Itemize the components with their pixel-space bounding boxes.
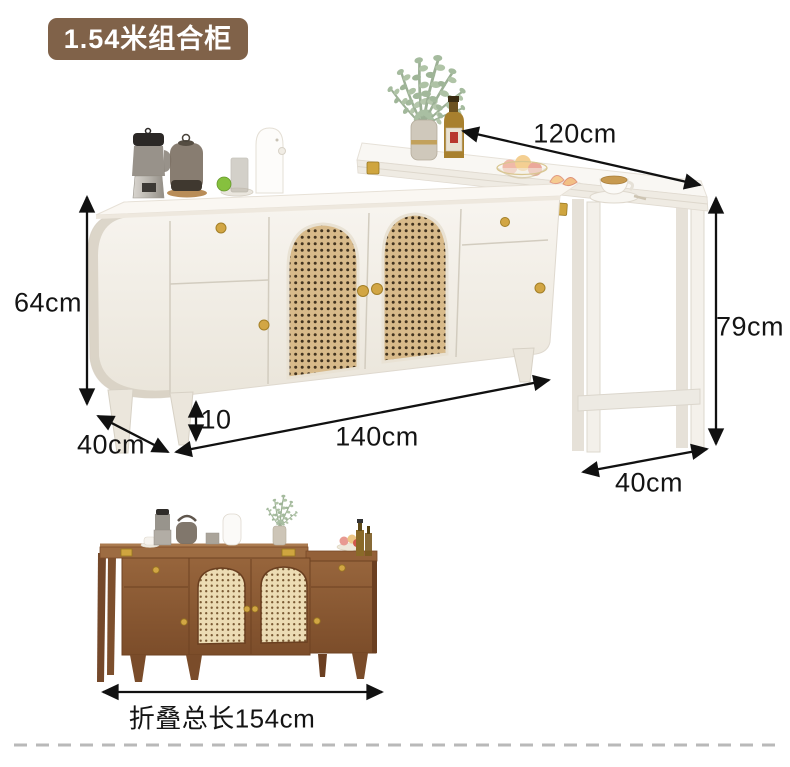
folded-table-leg <box>107 556 116 675</box>
fold-hinge <box>121 549 132 556</box>
table-leg <box>691 209 704 448</box>
product-diagram-art <box>0 0 790 767</box>
rattan-arch-door <box>261 567 307 643</box>
rattan-arch-door <box>198 568 245 644</box>
size-badge: 1.54米组合柜 <box>48 18 248 60</box>
table-leg <box>587 202 600 452</box>
table-leg <box>572 199 584 451</box>
dim-label-cabinet-height: 64cm <box>14 288 82 319</box>
white-cabinet <box>88 183 579 453</box>
dim-label-cabinet-width: 140cm <box>335 422 419 453</box>
dim-label-leg-height: 10 <box>200 405 231 436</box>
folded-length-caption: 折叠总长154cm <box>129 699 316 736</box>
walnut-cabinet-folded <box>97 494 377 682</box>
glass-kettle <box>167 135 207 198</box>
fold-hinge <box>282 549 295 556</box>
dim-label-table-height: 79cm <box>716 312 784 343</box>
lime-and-glass <box>217 158 253 196</box>
rattan-arch-door <box>288 224 358 378</box>
dim-label-cabinet-depth: 40cm <box>77 430 145 461</box>
fold-hinge <box>367 162 379 174</box>
table-leg <box>676 206 688 448</box>
dim-label-table-depth: 40cm <box>615 468 683 499</box>
folded-table-leg <box>97 553 106 682</box>
product-dimension-page: 1.54米组合柜 120cm 64cm 40cm 10 140cm 79cm 4… <box>0 0 790 767</box>
white-pitcher <box>256 128 286 193</box>
blender <box>132 129 171 199</box>
walnut-legs <box>130 653 368 682</box>
dim-label-table-length: 120cm <box>533 119 617 150</box>
rattan-arch-door <box>383 214 447 362</box>
walnut-front-extension <box>310 561 376 653</box>
walnut-side-edge <box>372 561 377 653</box>
